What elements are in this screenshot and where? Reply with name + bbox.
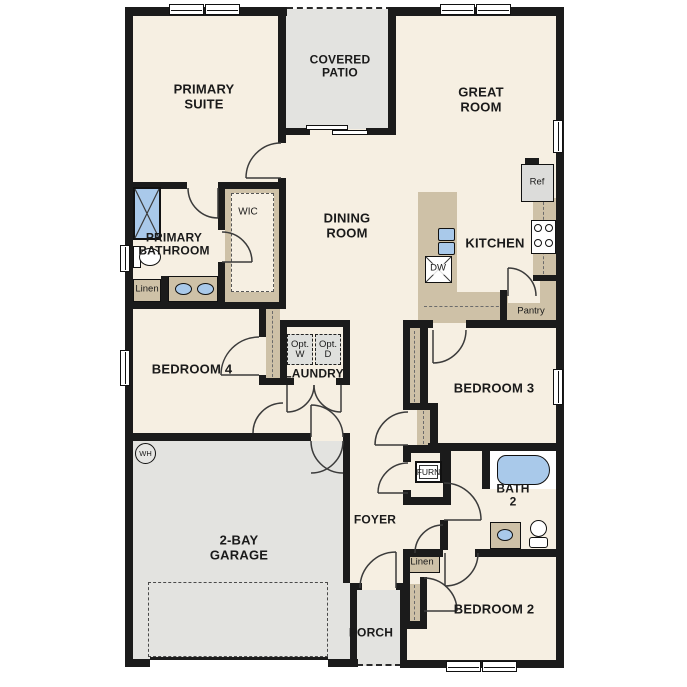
door-swing xyxy=(222,232,252,262)
label-dishwasher: DW xyxy=(429,264,447,275)
label-linen-hall: Linen xyxy=(410,558,433,569)
door-swing xyxy=(253,403,283,433)
door-swing-overlay xyxy=(0,0,687,687)
label-linen-primary: Linen xyxy=(135,285,158,296)
door-swing xyxy=(415,525,443,553)
label-pantry: Pantry xyxy=(517,307,544,318)
door-swing xyxy=(287,385,314,412)
room-label-bedroom-4: BEDROOM 4 xyxy=(152,363,233,378)
door-swing xyxy=(445,553,478,586)
room-label-garage: 2-BAY GARAGE xyxy=(210,533,268,562)
room-label-wic: WIC xyxy=(238,206,257,217)
room-label-primary-suite: PRIMARY SUITE xyxy=(174,82,235,111)
door-swing xyxy=(433,330,466,363)
door-swing xyxy=(508,268,536,296)
room-label-porch: PORCH xyxy=(349,626,393,639)
room-label-bedroom-2: BEDROOM 2 xyxy=(454,603,535,618)
room-label-primary-bathroom: PRIMARY BATHROOM xyxy=(138,232,209,259)
door-swing xyxy=(375,412,408,445)
door-swing xyxy=(360,552,396,588)
room-label-foyer: FOYER xyxy=(354,513,396,526)
room-label-covered-patio: COVERED PATIO xyxy=(310,54,371,81)
room-label-bedroom-3: BEDROOM 3 xyxy=(454,382,535,397)
door-swing xyxy=(246,143,281,178)
room-label-laundry: LAUNDRY xyxy=(284,367,344,380)
label-refrigerator: Ref xyxy=(530,178,545,189)
door-swing xyxy=(444,483,481,520)
room-label-great-room: GREAT ROOM xyxy=(458,85,504,114)
floor-plan: WH FURN Opt. W Opt. D PRIMARY SUITE COVE… xyxy=(0,0,687,687)
room-label-dining-room: DINING ROOM xyxy=(324,211,371,240)
room-label-kitchen: KITCHEN xyxy=(465,237,524,252)
room-label-bath-2: BATH 2 xyxy=(496,483,529,510)
door-swing xyxy=(378,463,408,493)
door-swing xyxy=(424,578,457,611)
door-swing xyxy=(188,188,218,218)
door-swing xyxy=(311,405,343,437)
door-swing xyxy=(314,385,341,412)
